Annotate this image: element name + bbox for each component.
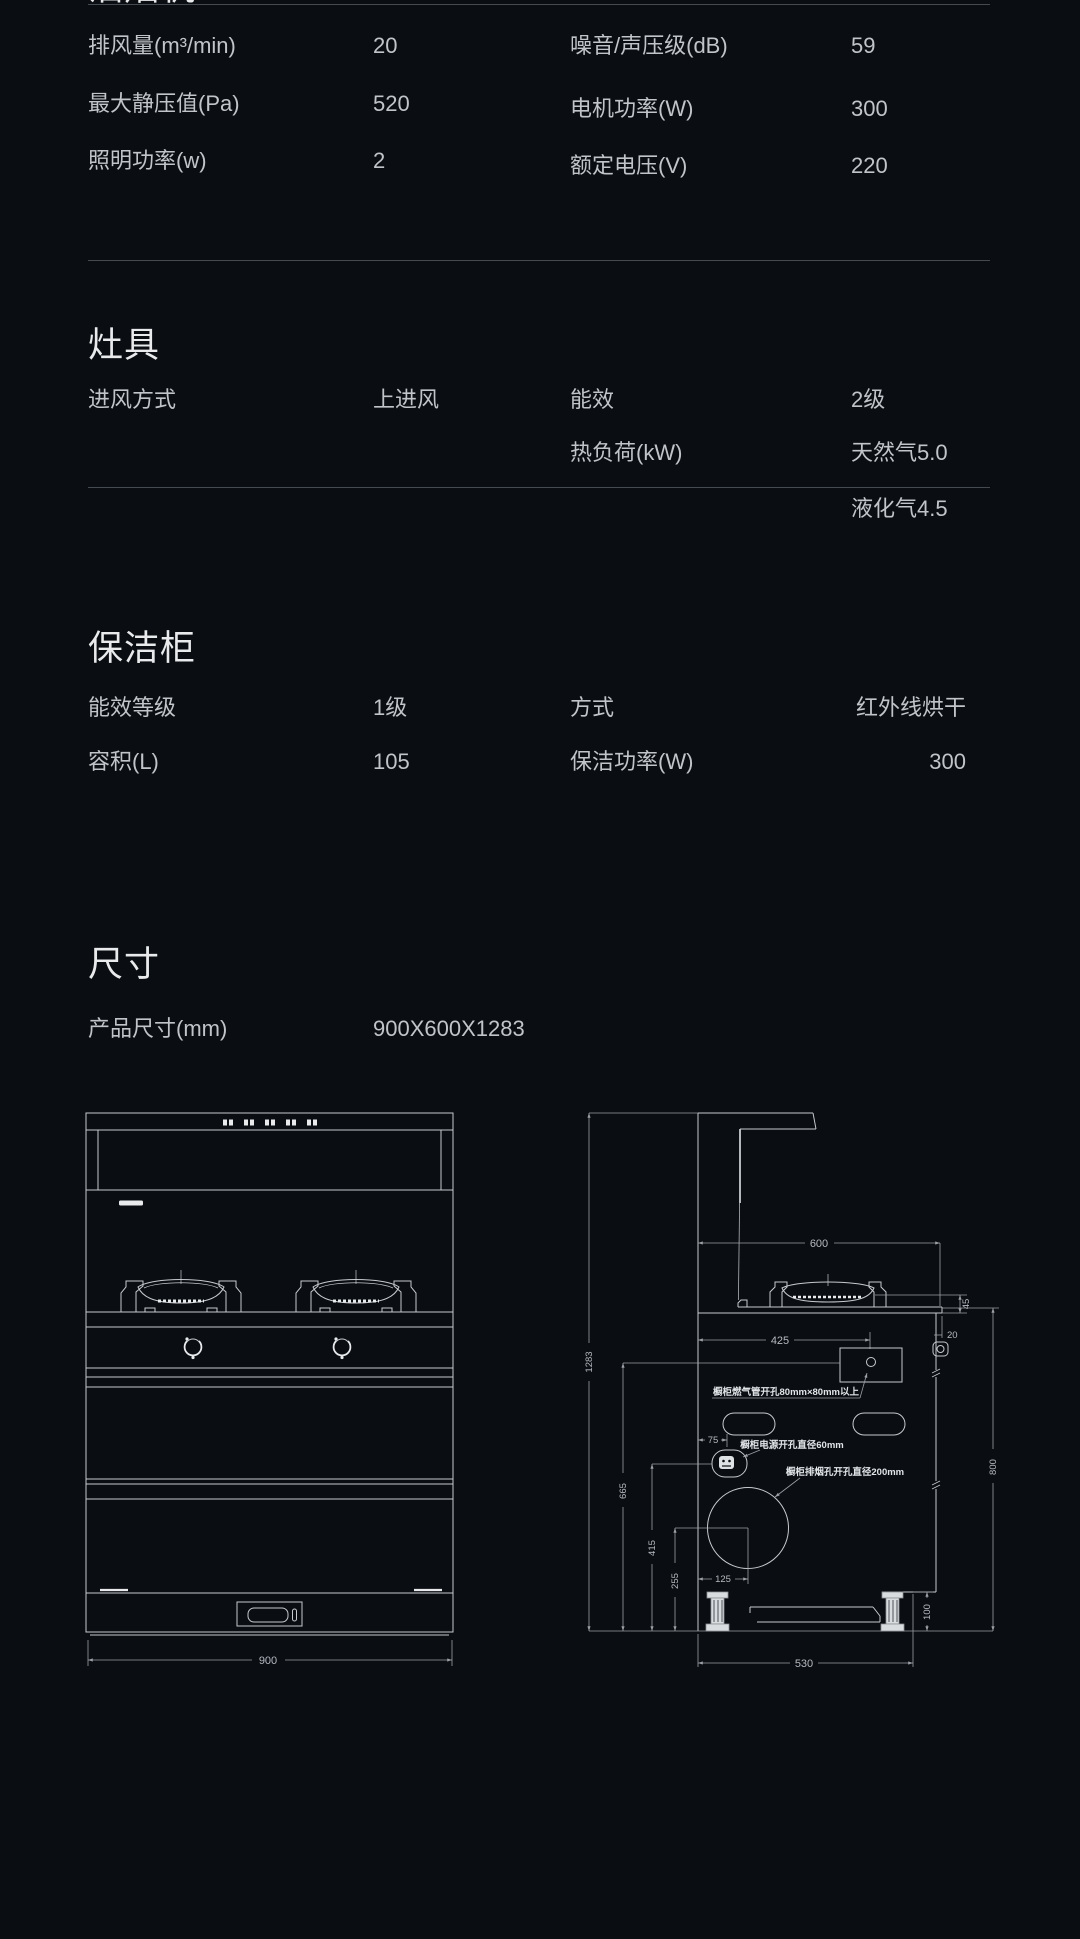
dim-100: 100 <box>913 1592 933 1631</box>
spec-value: 520 <box>373 89 410 119</box>
dim-425: 425 <box>698 1332 870 1349</box>
dim-255: 255 <box>668 1528 682 1631</box>
spec-value: 天然气5.0 <box>851 438 948 468</box>
dim-665: 665 <box>616 1363 840 1631</box>
svg-text:75: 75 <box>708 1435 719 1446</box>
gas-hole-note: 橱柜燃气管开孔80mm×80mm以上 <box>712 1373 867 1398</box>
spec-value: 红外线烘干 <box>666 693 966 723</box>
spec-label: 容积(L) <box>88 747 159 777</box>
burner-left <box>121 1270 241 1312</box>
burner-side-profile <box>770 1274 886 1307</box>
spec-value: 105 <box>373 747 410 777</box>
dim-125: 125 <box>698 1572 748 1585</box>
vent-hole-note: 橱柜排烟孔开孔直径200mm <box>775 1466 904 1497</box>
svg-text:800: 800 <box>988 1459 999 1475</box>
dim-530: 530 <box>698 1594 913 1670</box>
vent-slot <box>723 1413 775 1435</box>
spec-label: 噪音/声压级(dB) <box>570 31 728 61</box>
svg-text:橱柜电源开孔直径60mm: 橱柜电源开孔直径60mm <box>740 1439 843 1451</box>
knob-right-icon <box>334 1337 351 1359</box>
section-divider <box>88 260 990 261</box>
svg-text:600: 600 <box>810 1238 828 1250</box>
spec-label: 热负荷(kW) <box>570 438 682 468</box>
section-title-stove: 灶具 <box>88 322 160 370</box>
svg-text:100: 100 <box>922 1604 933 1620</box>
section-title-hood: 油烟机 <box>88 0 196 13</box>
dim-20: 20 <box>934 1316 958 1341</box>
svg-text:665: 665 <box>618 1483 629 1499</box>
section-divider <box>88 487 990 488</box>
brand-logo <box>119 1201 143 1206</box>
spec-value: 2 <box>373 146 385 176</box>
spec-value: 20 <box>373 31 397 61</box>
spec-label: 电机功率(W) <box>570 94 693 124</box>
stove-body-outline <box>86 1113 453 1632</box>
spec-label: 排风量(m³/min) <box>88 31 236 61</box>
dim-75: 75 <box>698 1433 727 1447</box>
svg-text:255: 255 <box>670 1573 681 1589</box>
spec-value: 220 <box>851 151 888 181</box>
spec-value: 300 <box>666 747 966 777</box>
drawer-handle <box>237 1602 302 1626</box>
svg-text:橱柜排烟孔开孔直径200mm: 橱柜排烟孔开孔直径200mm <box>786 1466 904 1478</box>
spec-label: 产品尺寸(mm) <box>88 1014 227 1044</box>
spec-value: 59 <box>851 31 875 61</box>
section-divider <box>88 4 990 5</box>
hood-profile <box>698 1113 816 1631</box>
knob-side-icon <box>933 1342 948 1356</box>
section-title-cabinet: 保洁柜 <box>88 625 196 673</box>
gas-hole-box <box>840 1348 902 1382</box>
spec-label: 能效 <box>570 385 614 415</box>
spec-label: 最大静压值(Pa) <box>88 89 240 119</box>
vent-slot <box>853 1413 905 1435</box>
svg-text:900: 900 <box>259 1655 277 1667</box>
front-view-drawing: 900 <box>70 1100 470 1680</box>
spec-value: 300 <box>851 94 888 124</box>
spec-label: 方式 <box>570 693 614 723</box>
svg-text:415: 415 <box>647 1540 658 1556</box>
section-title-size: 尺寸 <box>88 941 160 989</box>
svg-text:1283: 1283 <box>584 1351 595 1372</box>
dim-600: 600 <box>698 1236 940 1306</box>
dim-900: 900 <box>88 1640 452 1667</box>
spec-value: 2级 <box>851 385 885 415</box>
spec-value: 液化气4.5 <box>851 494 948 524</box>
cabinet-front-face <box>882 1313 940 1592</box>
spec-label: 额定电压(V) <box>570 151 687 181</box>
spec-label: 进风方式 <box>88 385 176 415</box>
foot-rear <box>706 1592 729 1631</box>
spec-value: 上进风 <box>373 385 439 415</box>
svg-text:125: 125 <box>715 1574 731 1585</box>
toe-kick-panel <box>750 1607 880 1622</box>
power-outlet <box>712 1450 747 1477</box>
svg-text:425: 425 <box>771 1335 789 1347</box>
svg-text:530: 530 <box>795 1658 813 1670</box>
spec-label: 照明功率(w) <box>88 146 207 176</box>
svg-text:橱柜燃气管开孔80mm×80mm以上: 橱柜燃气管开孔80mm×80mm以上 <box>713 1386 859 1398</box>
foot-front <box>881 1592 904 1631</box>
spec-value: 1级 <box>373 693 407 723</box>
knob-left-icon <box>185 1337 202 1359</box>
dim-415: 415 <box>645 1464 712 1631</box>
dim-45: 45 <box>875 1295 972 1313</box>
burner-right <box>296 1270 416 1312</box>
dim-800: 800 <box>942 1308 1000 1631</box>
spec-label: 能效等级 <box>88 693 176 723</box>
product-spec-page: 油烟机 排风量(m³/min) 20 噪音/声压级(dB) 59 最大静压值(P… <box>0 0 1080 1939</box>
dim-1283: 1283 <box>582 1113 698 1631</box>
side-view-drawing: 1283 600 45 <box>575 1100 1010 1680</box>
spec-value: 900X600X1283 <box>373 1014 525 1044</box>
power-hole-note: 橱柜电源开孔直径60mm <box>740 1439 843 1457</box>
control-buttons-icon <box>223 1120 317 1126</box>
svg-text:20: 20 <box>947 1330 958 1341</box>
